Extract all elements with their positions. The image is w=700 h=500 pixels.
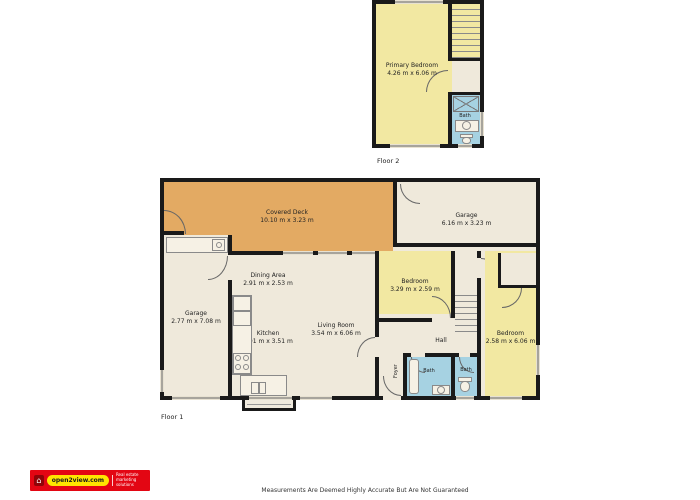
room-label-bath-main: Bath — [407, 368, 451, 375]
stairs-floor2 — [452, 4, 480, 58]
window — [318, 251, 347, 255]
disclaimer-text: Measurements Are Deemed Highly Accurate … — [190, 487, 540, 494]
window — [283, 251, 313, 255]
kitchen-sink — [259, 382, 266, 394]
window — [395, 0, 443, 4]
kitchen-cabinet — [233, 296, 251, 311]
room-label-dining: Dining Area 2.91 m x 2.53 m — [208, 272, 328, 288]
window — [480, 112, 484, 136]
toilet-bowl — [462, 137, 471, 144]
wall — [375, 318, 432, 322]
sink-icon — [216, 242, 222, 248]
closet-floor2 — [452, 61, 480, 92]
stairs-floor1 — [455, 290, 477, 337]
stove-burner — [235, 355, 241, 361]
open2view-logo-text: open2view.com — [47, 475, 109, 486]
floorplan-floor2: Bath Primary Bedroom 4.26 m x 6.06 m — [372, 0, 484, 148]
wall — [477, 251, 481, 258]
window — [300, 396, 332, 400]
front-door-gap — [383, 396, 401, 400]
room-label-bath-floor2: Bath — [450, 113, 480, 120]
floorplan-floor1: Covered Deck 10.10 m x 3.23 m Garage 2.7… — [160, 178, 540, 400]
bathtub — [409, 359, 419, 394]
sink-icon — [437, 386, 445, 394]
stove-burner — [243, 364, 249, 370]
window — [456, 396, 474, 400]
room-label-hall: Hall — [421, 337, 461, 345]
room-label-garage-left: Garage 2.77 m x 7.08 m — [164, 310, 228, 326]
kitchen-cabinet — [233, 311, 251, 326]
window — [490, 396, 522, 400]
wall — [375, 318, 379, 337]
door-arc — [357, 337, 375, 357]
wall — [477, 278, 481, 396]
wall — [448, 95, 452, 144]
window — [390, 144, 440, 148]
closet-bedroom-right — [498, 253, 536, 288]
sink-icon — [462, 121, 471, 130]
shower — [453, 96, 479, 112]
room-label-covered-deck: Covered Deck 10.10 m x 3.23 m — [232, 209, 342, 225]
room-label-bedroom-small: Bedroom 3.29 m x 2.59 m — [379, 278, 451, 294]
room-label-bath-wc: Bath — [455, 367, 477, 374]
window — [458, 144, 472, 148]
logo-tagline: Real estate marketing solutions — [116, 473, 146, 487]
open2view-house-icon: ⌂ — [34, 475, 44, 486]
floor2-label: Floor 2 — [377, 157, 399, 165]
floor1-label: Floor 1 — [161, 413, 183, 421]
room-label-primary-bedroom: Primary Bedroom 4.26 m x 6.06 m — [376, 62, 448, 78]
garage-door — [172, 396, 220, 400]
open2view-logo-banner: ⌂ open2view.com Real estate marketing so… — [30, 470, 150, 491]
window — [536, 345, 540, 375]
stove-burner — [243, 355, 249, 361]
room-label-garage-top: Garage 6.16 m x 3.23 m — [397, 212, 536, 228]
porch-steps — [242, 400, 296, 411]
toilet-bowl — [460, 381, 470, 392]
window — [160, 370, 164, 392]
wall — [393, 243, 536, 247]
floorplan-page: Bath Primary Bedroom 4.26 m x 6.06 m Flo… — [0, 0, 700, 500]
logo-divider — [112, 475, 113, 486]
door-arc — [383, 376, 401, 396]
wall — [228, 235, 232, 255]
stove-burner — [235, 364, 241, 370]
wall — [448, 4, 452, 58]
kitchen-sink — [251, 382, 259, 394]
room-label-foyer: Foyer — [393, 354, 399, 378]
room-label-bedroom-right: Bedroom 2.58 m x 6.06 m — [485, 330, 536, 346]
wall — [375, 357, 379, 396]
